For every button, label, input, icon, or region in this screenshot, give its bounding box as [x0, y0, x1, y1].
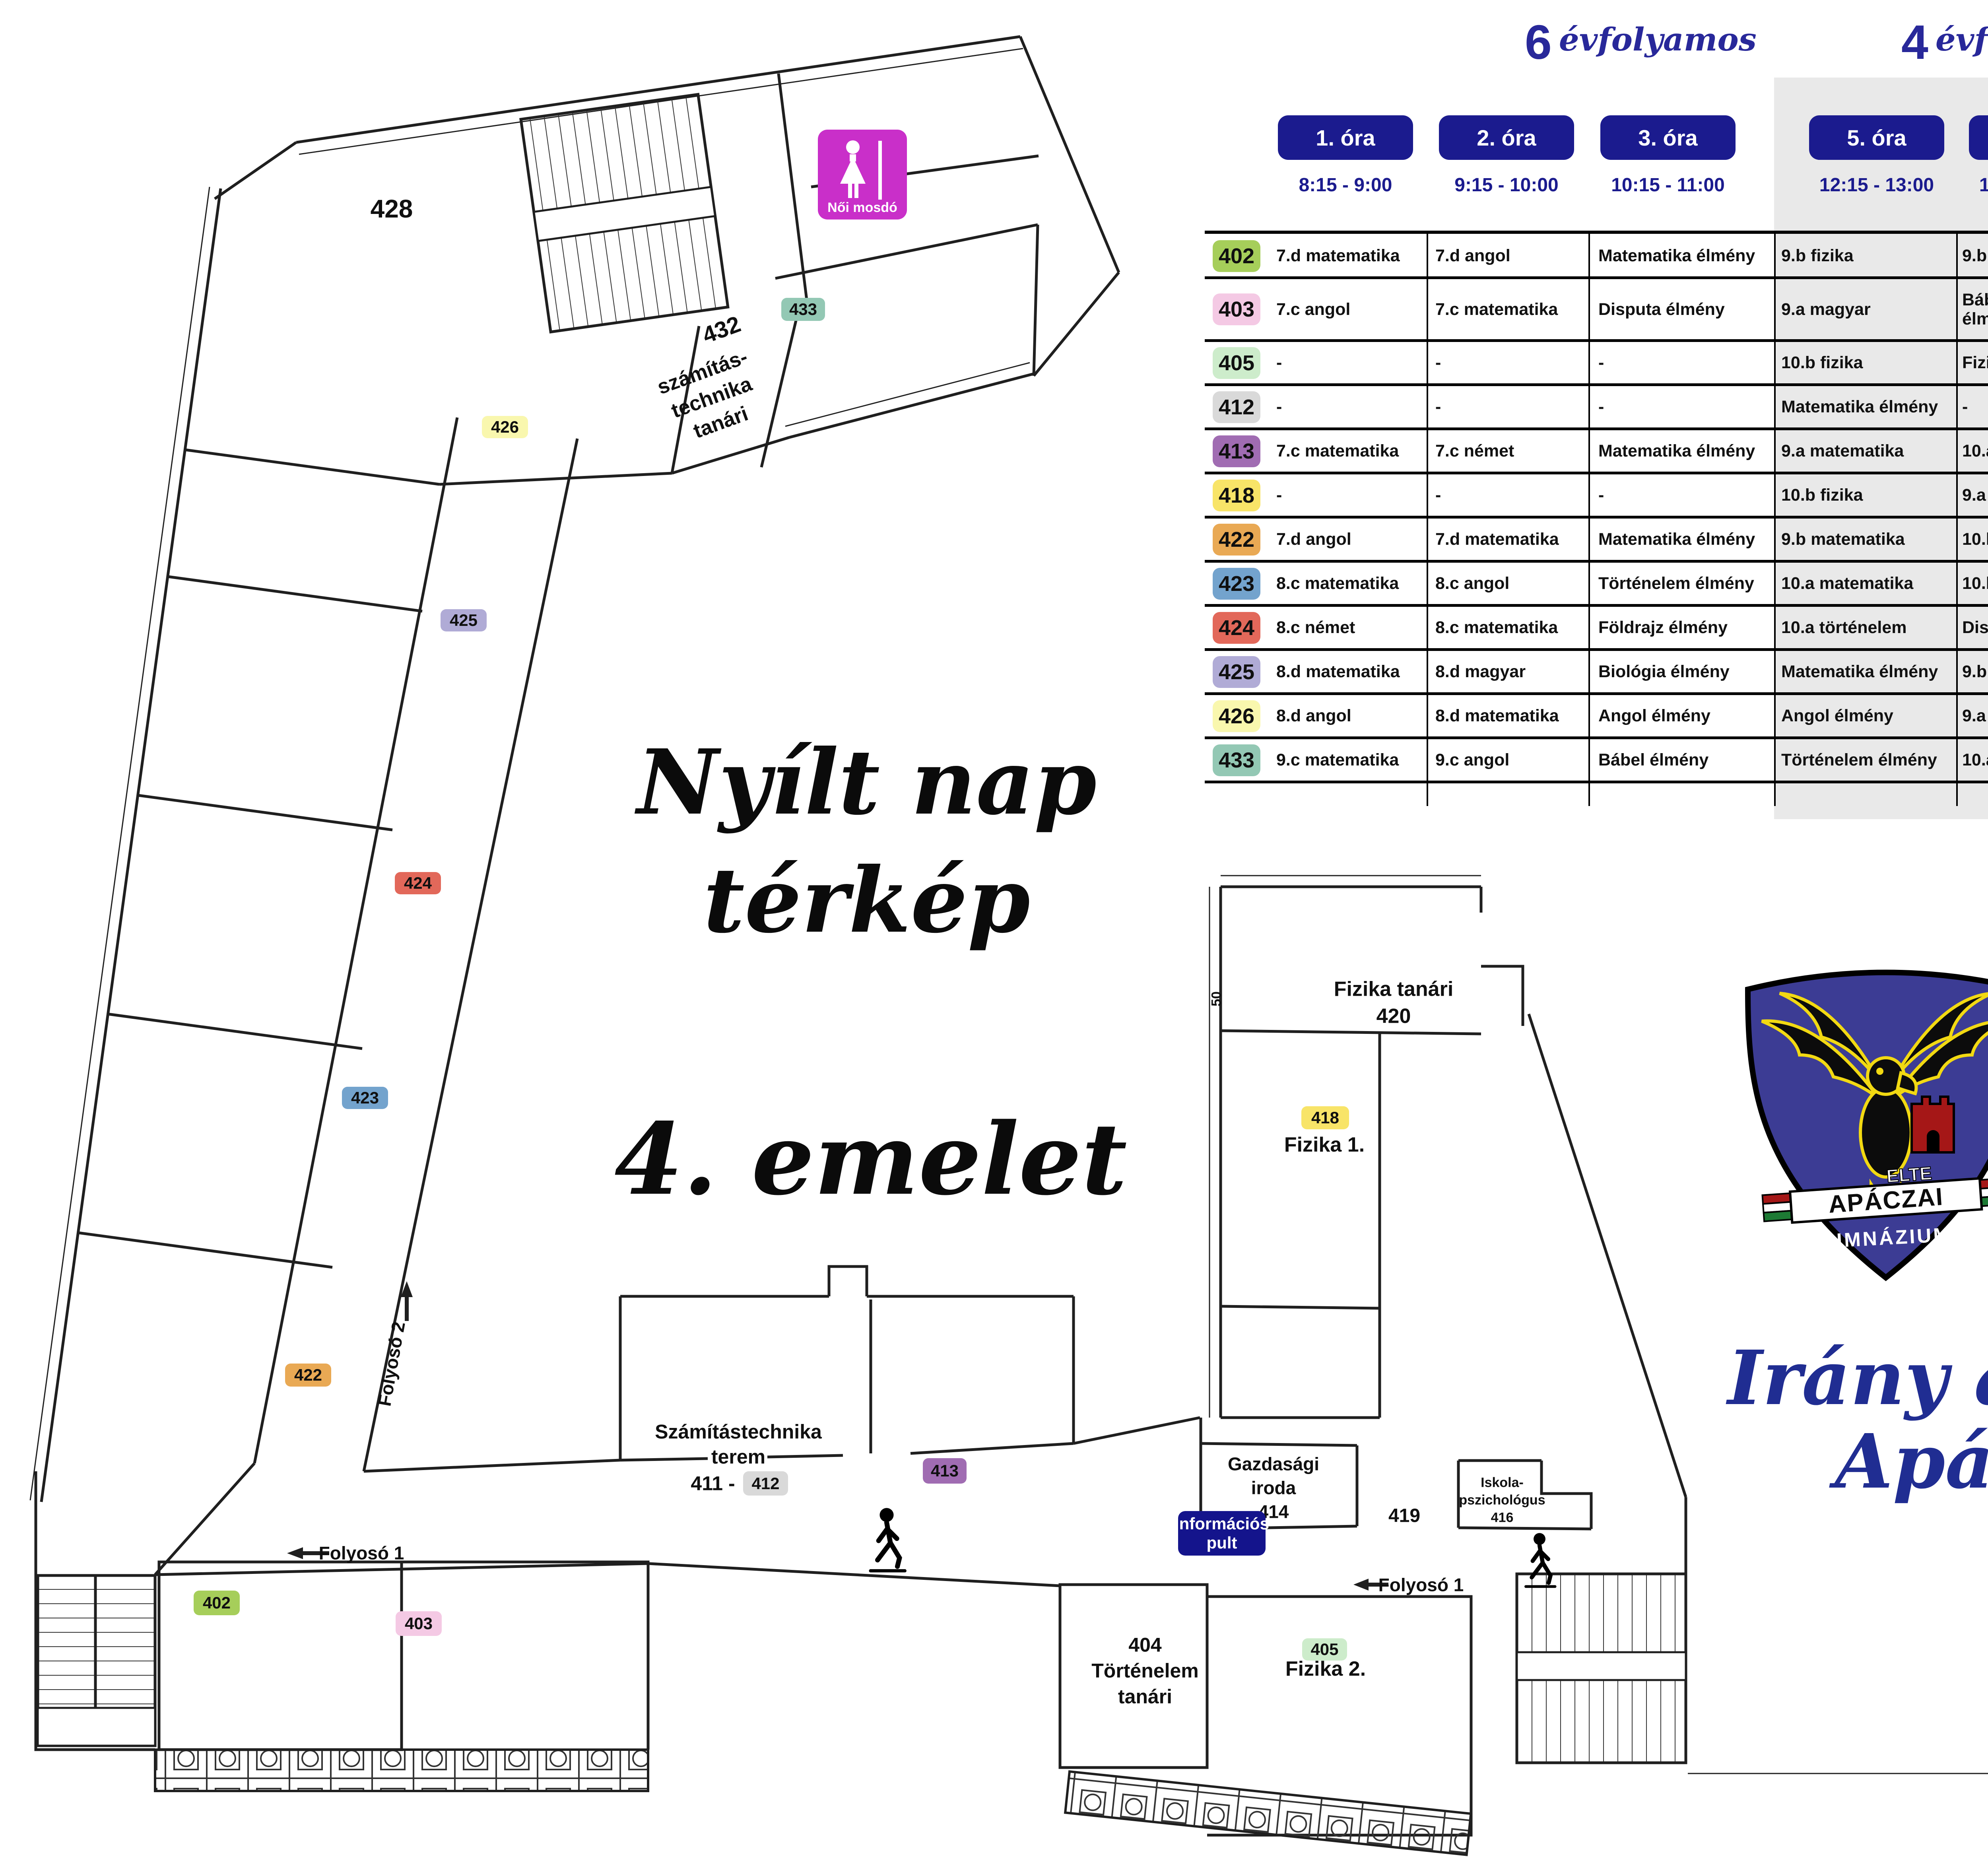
female-icon [818, 137, 907, 204]
map-label-szmts: számítás- technika tanári [654, 344, 770, 452]
map-label-fizikatanri: Fizika tanári 420 [1334, 976, 1454, 1030]
info-desk-label: Információs pult [1175, 1514, 1269, 1553]
map-label-419: 419 [1388, 1505, 1420, 1527]
map-room-badge-422: 422 [285, 1364, 331, 1387]
map-room-badge-402: 402 [194, 1591, 240, 1615]
map-label-fizika2: Fizika 2. [1285, 1657, 1366, 1681]
map-label-folyos1: Folyosó 1 [319, 1543, 404, 1564]
map-room-badge-413: 413 [923, 1458, 967, 1484]
map-label-iskola: Iskola- pszichológus 416 [1459, 1474, 1545, 1527]
map-room-badge-426: 426 [482, 416, 528, 438]
map-room-badge-424: 424 [395, 872, 441, 894]
map-label-432: 432 [699, 311, 744, 349]
map-label-50: 50 [1209, 991, 1224, 1006]
map-label-404: 404 Történelem tanári [1091, 1632, 1199, 1710]
map-room-badge-423: 423 [342, 1087, 388, 1109]
map-room-badge-425: 425 [441, 609, 487, 631]
map-room-badge-433: 433 [781, 298, 825, 321]
map-room-badge-418: 418 [1301, 1106, 1349, 1129]
map-label-428: 428 [371, 194, 413, 224]
map-label-folyos1: Folyosó 1 [1378, 1575, 1464, 1596]
map-label-szmtstechnika: Számítástechnika terem [655, 1420, 822, 1469]
map-label-411: 411 - [691, 1472, 735, 1495]
female-restroom-sign: Női mosdó [818, 130, 907, 219]
map-overlay: 4264254244234224024034124134184054334284… [0, 0, 1988, 1857]
map-room-badge-412: 412 [743, 1471, 788, 1496]
info-desk-sign: Információs pult [1178, 1511, 1266, 1556]
map-room-badge-403: 403 [396, 1611, 442, 1636]
map-label-folyos2: Folyosó 2 [374, 1320, 409, 1408]
map-label-fizika1: Fizika 1. [1284, 1133, 1365, 1157]
